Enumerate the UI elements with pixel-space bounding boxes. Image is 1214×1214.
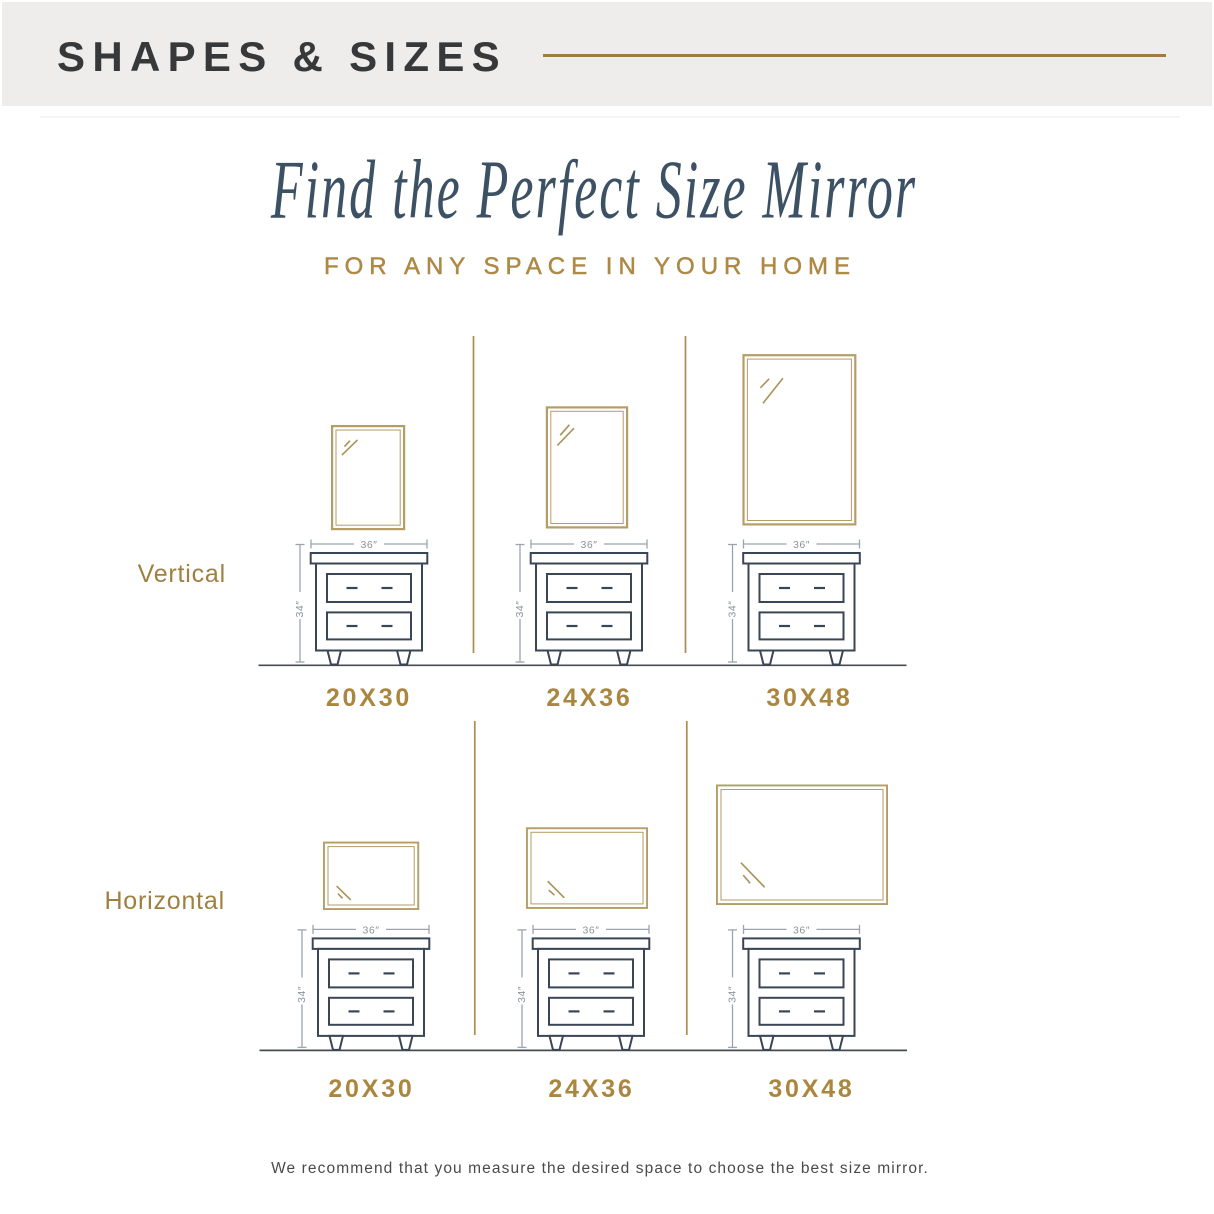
svg-text:34″: 34″	[727, 986, 739, 1003]
svg-text:34″: 34″	[296, 986, 308, 1003]
svg-text:36″: 36″	[363, 924, 380, 936]
svg-text:36″: 36″	[581, 539, 598, 551]
svg-text:34″: 34″	[294, 601, 306, 618]
svg-text:36″: 36″	[793, 924, 810, 936]
svg-text:34″: 34″	[727, 601, 739, 618]
svg-text:36″: 36″	[793, 539, 810, 551]
svg-text:36″: 36″	[583, 924, 600, 936]
svg-text:36″: 36″	[361, 539, 378, 551]
svg-text:34″: 34″	[516, 986, 528, 1003]
svg-text:34″: 34″	[514, 601, 526, 618]
